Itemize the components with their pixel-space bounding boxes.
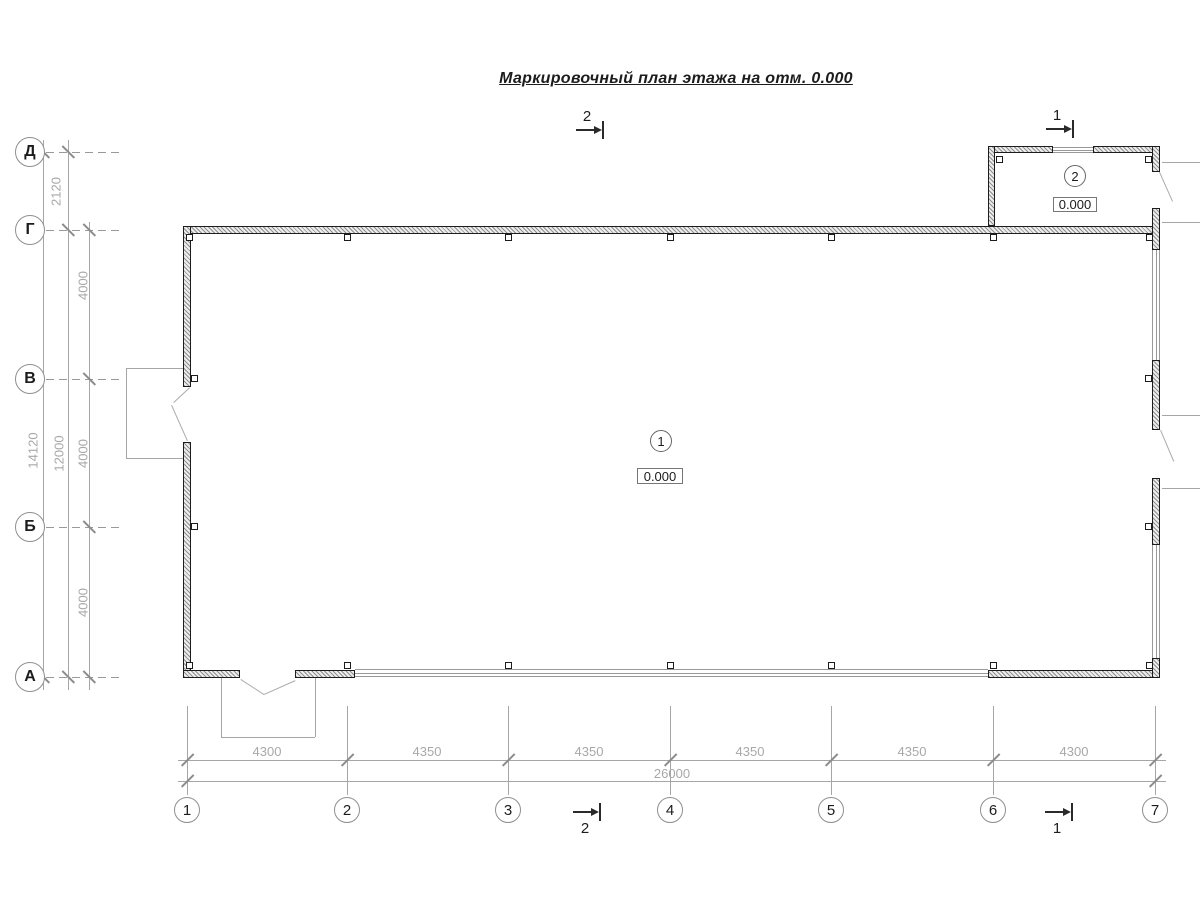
axis-line-b bbox=[46, 527, 122, 528]
column-mark bbox=[828, 234, 835, 241]
porch-bottom-left-edge bbox=[221, 678, 222, 737]
landing-line-right-1 bbox=[1162, 415, 1200, 416]
axis-bubble-6: 6 bbox=[980, 797, 1006, 823]
dim-text-4350-3: 4350 bbox=[720, 745, 780, 758]
section-1-bottom-label: 1 bbox=[1049, 820, 1065, 837]
axis-label-b: Б bbox=[24, 518, 36, 536]
landing-line-right-2 bbox=[1162, 488, 1200, 489]
annex-wall-top-left bbox=[988, 146, 1053, 153]
axis-bubble-7: 7 bbox=[1142, 797, 1168, 823]
axis-line-v bbox=[46, 379, 122, 380]
column-mark bbox=[191, 375, 198, 382]
axis-label-v: В bbox=[24, 370, 36, 388]
room-2-number: 2 bbox=[1071, 169, 1078, 184]
column-mark bbox=[186, 234, 193, 241]
door-swing-left-leaf1 bbox=[173, 387, 190, 403]
axis-bubble-b: Б bbox=[15, 512, 45, 542]
wall-left-upper bbox=[183, 226, 191, 387]
door-swing-left-leaf2 bbox=[171, 405, 188, 441]
axis-stub-5 bbox=[831, 706, 832, 795]
section-1-top-arrow-line bbox=[1046, 128, 1064, 130]
dim-text-4350-1: 4350 bbox=[397, 745, 457, 758]
section-2-bottom-label: 2 bbox=[577, 820, 593, 837]
axis-line-g bbox=[46, 230, 122, 231]
column-mark bbox=[186, 662, 193, 669]
column-mark bbox=[505, 662, 512, 669]
room-1-elevation: 0.000 bbox=[644, 469, 677, 484]
wall-right-seg4 bbox=[1152, 658, 1160, 678]
porch-bottom-edge bbox=[221, 737, 315, 738]
column-mark bbox=[1145, 375, 1152, 382]
room-2-elevation-box: 0.000 bbox=[1053, 197, 1097, 212]
wall-bottom-right bbox=[988, 670, 1160, 678]
dim-text-4350-4: 4350 bbox=[882, 745, 942, 758]
dim-text-4000-3: 4000 bbox=[77, 573, 90, 633]
door-swing-right-main bbox=[1160, 430, 1174, 462]
column-mark bbox=[1146, 662, 1153, 669]
column-mark bbox=[996, 156, 1003, 163]
section-2-bottom-arrow-line bbox=[573, 811, 591, 813]
section-1-top-label: 1 bbox=[1049, 107, 1065, 124]
axis-label-d: Д bbox=[24, 143, 35, 161]
axis-bubble-v: В bbox=[15, 364, 45, 394]
room-2-elevation: 0.000 bbox=[1059, 197, 1092, 212]
column-mark bbox=[344, 234, 351, 241]
section-2-top-arrow-line bbox=[576, 129, 594, 131]
window-band-right-upper bbox=[1152, 250, 1160, 360]
column-mark bbox=[1146, 234, 1153, 241]
porch-left-side bbox=[126, 368, 127, 458]
axis-label-6: 6 bbox=[989, 802, 997, 819]
section-2-bottom-arrowhead-icon bbox=[591, 808, 599, 816]
room-1-number: 1 bbox=[657, 434, 664, 449]
section-2-top-label: 2 bbox=[579, 108, 595, 125]
axis-bubble-5: 5 bbox=[818, 797, 844, 823]
axis-label-5: 5 bbox=[827, 802, 835, 819]
dim-text-4000-1: 4000 bbox=[77, 256, 90, 316]
window-annex-top bbox=[1053, 147, 1093, 153]
axis-label-a: А bbox=[24, 668, 36, 686]
section-2-top-arrowhead-icon bbox=[594, 126, 602, 134]
axis-bubble-3: 3 bbox=[495, 797, 521, 823]
dim-text-26000: 26000 bbox=[642, 767, 702, 780]
dim-text-4300-2: 4300 bbox=[1044, 745, 1104, 758]
column-mark bbox=[990, 662, 997, 669]
dim-text-2120: 2120 bbox=[50, 162, 63, 222]
section-1-bottom-bar bbox=[1071, 803, 1073, 821]
column-mark bbox=[1145, 523, 1152, 530]
axis-line-a bbox=[46, 677, 122, 678]
column-mark bbox=[191, 523, 198, 530]
axis-bubble-g: Г bbox=[15, 215, 45, 245]
wall-right-seg3 bbox=[1152, 478, 1160, 545]
dim-line-bottom-total bbox=[178, 781, 1166, 782]
column-mark bbox=[667, 662, 674, 669]
section-1-bottom-arrowhead-icon bbox=[1063, 808, 1071, 816]
column-mark bbox=[667, 234, 674, 241]
axis-label-2: 2 bbox=[343, 802, 351, 819]
axis-stub-3 bbox=[508, 706, 509, 795]
dim-text-14120: 14120 bbox=[27, 421, 40, 481]
dim-line-left-subtotal bbox=[68, 140, 69, 690]
section-1-top-arrowhead-icon bbox=[1064, 125, 1072, 133]
wall-left-lower bbox=[183, 442, 191, 678]
annex-wall-left bbox=[988, 146, 995, 226]
window-band-bottom bbox=[355, 669, 988, 677]
annex-wall-top-right bbox=[1093, 146, 1160, 153]
floor-plan-drawing: Маркировочный план этажа на отм. 0.000 bbox=[0, 0, 1200, 900]
dim-text-4300-1: 4300 bbox=[237, 745, 297, 758]
dim-text-4000-2: 4000 bbox=[77, 424, 90, 484]
dim-text-4350-2: 4350 bbox=[559, 745, 619, 758]
column-mark bbox=[344, 662, 351, 669]
axis-stub-2 bbox=[347, 706, 348, 795]
porch-left-top bbox=[126, 368, 183, 369]
dim-line-bottom-segments bbox=[178, 760, 1166, 761]
axis-bubble-d: Д bbox=[15, 137, 45, 167]
section-2-top-bar bbox=[602, 121, 604, 139]
axis-label-g: Г bbox=[25, 221, 34, 239]
axis-label-3: 3 bbox=[504, 802, 512, 819]
wall-bottom-seg1 bbox=[183, 670, 240, 678]
door-swing-bottom-leaf1 bbox=[240, 679, 264, 695]
room-2-bubble: 2 bbox=[1064, 165, 1086, 187]
axis-bubble-2: 2 bbox=[334, 797, 360, 823]
door-swing-bottom-leaf2 bbox=[264, 680, 295, 695]
section-2-bottom-bar bbox=[599, 803, 601, 821]
room-1-bubble: 1 bbox=[650, 430, 672, 452]
axis-line-d bbox=[46, 152, 122, 153]
column-mark bbox=[828, 662, 835, 669]
drawing-title: Маркировочный план этажа на отм. 0.000 bbox=[420, 70, 932, 88]
room-1-elevation-box: 0.000 bbox=[637, 468, 683, 484]
porch-bottom-right-edge bbox=[315, 678, 316, 737]
axis-bubble-4: 4 bbox=[657, 797, 683, 823]
wall-bottom-seg2 bbox=[295, 670, 355, 678]
section-1-top-bar bbox=[1072, 120, 1074, 138]
annex-wall-right-lower bbox=[1152, 208, 1160, 250]
column-mark bbox=[990, 234, 997, 241]
door-swing-annex bbox=[1159, 172, 1173, 202]
axis-label-1: 1 bbox=[183, 802, 191, 819]
column-mark bbox=[1145, 156, 1152, 163]
axis-label-7: 7 bbox=[1151, 802, 1159, 819]
axis-stub-4 bbox=[670, 706, 671, 795]
axis-label-4: 4 bbox=[666, 802, 674, 819]
wall-top-main bbox=[183, 226, 1160, 234]
dim-text-12000: 12000 bbox=[53, 424, 66, 484]
axis-bubble-a: А bbox=[15, 662, 45, 692]
column-mark bbox=[505, 234, 512, 241]
window-band-right-lower bbox=[1152, 545, 1160, 658]
annex-wall-right-upper bbox=[1152, 146, 1160, 172]
axis-stub-6 bbox=[993, 706, 994, 795]
wall-right-seg2 bbox=[1152, 360, 1160, 430]
section-1-bottom-arrow-line bbox=[1045, 811, 1063, 813]
porch-left-bottom bbox=[126, 458, 183, 459]
landing-line-annex-2 bbox=[1162, 222, 1200, 223]
axis-bubble-1: 1 bbox=[174, 797, 200, 823]
landing-line-annex-1 bbox=[1162, 162, 1200, 163]
